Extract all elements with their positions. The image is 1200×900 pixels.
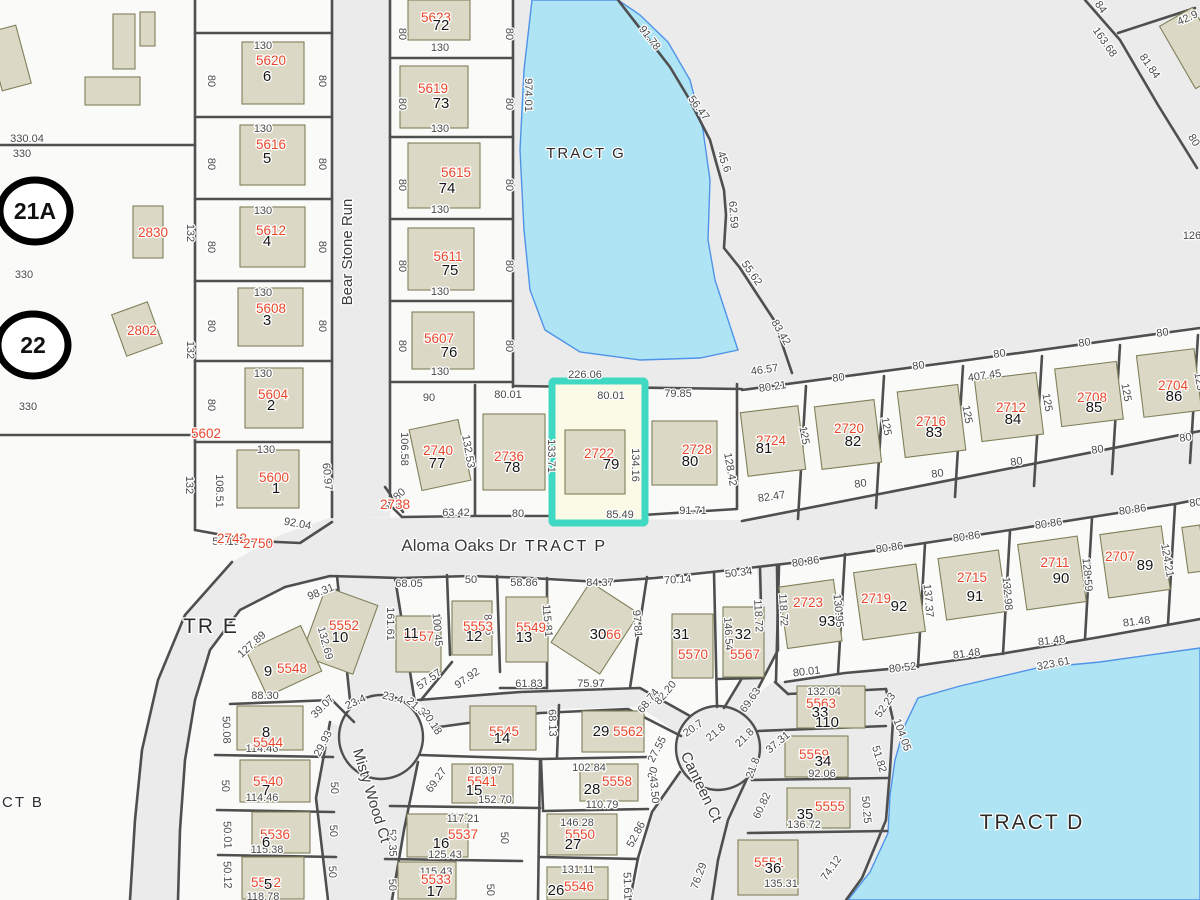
- lot-number: 15: [466, 782, 483, 799]
- parcel-number: 5555: [815, 799, 845, 814]
- lot-number: 92: [891, 598, 908, 615]
- lot-number: 28: [584, 781, 601, 798]
- lot-number: 90: [1053, 570, 1070, 587]
- dimension-label: 133.71: [545, 439, 557, 473]
- dimension-label: 80: [1091, 443, 1105, 457]
- tract-label: CT B: [2, 794, 44, 811]
- parcel-number: 5562: [613, 724, 643, 739]
- parcel-number: 5615: [441, 165, 471, 180]
- lot-number: 3: [263, 312, 271, 329]
- dimension-label: 80: [396, 340, 408, 352]
- lot-number: 73: [433, 95, 450, 112]
- dimension-label: 80: [316, 241, 328, 253]
- lot-number: 5: [264, 876, 272, 893]
- section-ring-label: 21A: [14, 198, 56, 224]
- parcel-number: 5558: [602, 774, 632, 789]
- lot-number: 82: [845, 433, 862, 450]
- dimension-label: 330: [19, 401, 37, 413]
- building-footprint: [140, 12, 155, 46]
- dimension-label: 131.11: [562, 864, 595, 876]
- parcel-number: 2715: [957, 570, 987, 585]
- dimension-label: 80: [503, 28, 515, 40]
- dimension-label: 130: [431, 123, 449, 135]
- lot-number: 78: [504, 459, 521, 476]
- dimension-label: 132: [183, 476, 195, 494]
- dimension-label: 130: [254, 123, 272, 135]
- lot-number: 16: [433, 835, 450, 852]
- parcel-map-viewport[interactable]: 21A22330.04330330330132132132108.5160.97…: [0, 0, 1200, 900]
- parcel-number: 5537: [448, 827, 478, 842]
- dimension-label: 50: [465, 574, 477, 586]
- dimension-label: 50: [484, 884, 496, 897]
- street-name-label: Aloma Oaks Dr: [401, 536, 517, 555]
- dimension-label: 132: [184, 341, 196, 359]
- dimension-label: 135.31: [764, 878, 798, 890]
- lot-number: 6: [263, 68, 271, 85]
- parcel-number: 2719: [861, 591, 891, 606]
- lot-number: 1: [272, 480, 280, 497]
- dimension-label: 50: [327, 825, 339, 838]
- dimension-label: 130: [254, 368, 272, 380]
- dimension-label: 80: [993, 347, 1007, 361]
- dimension-label: 130: [254, 40, 272, 52]
- dimension-label: 80: [205, 320, 217, 332]
- dimension-label: 130: [431, 366, 449, 378]
- dimension-label: 80: [1179, 431, 1193, 445]
- building-footprint: [938, 550, 1007, 620]
- dimension-label: 80: [1078, 336, 1092, 350]
- dimension-label: 50: [219, 780, 231, 793]
- dimension-label: 79.85: [664, 388, 692, 400]
- dimension-label: 330: [15, 269, 33, 281]
- dimension-label: 90: [423, 392, 435, 404]
- dimension-label: 117.21: [447, 813, 480, 825]
- dimension-label: 91.71: [679, 505, 707, 517]
- dimension-label: 50: [386, 879, 398, 892]
- dimension-label: 126: [1183, 230, 1200, 242]
- lot-number: 17: [427, 883, 444, 900]
- dimension-label: 68.13: [546, 709, 559, 737]
- lot-number: 34: [815, 753, 832, 770]
- dimension-label: 80: [503, 98, 515, 110]
- lot-number: 93: [819, 613, 836, 630]
- dimension-label: 50.01: [221, 821, 234, 849]
- dimension-label: 75.97: [577, 678, 605, 690]
- lot-number: 4: [263, 233, 271, 250]
- dimension-label: 80: [205, 158, 217, 170]
- lot-number: 85: [1086, 399, 1103, 416]
- lot-number: 11: [403, 625, 419, 642]
- parcel-number: 2723: [793, 595, 823, 610]
- tract-label: TRACT G: [546, 145, 626, 162]
- dimension-label: 130: [431, 204, 449, 216]
- dimension-label: 80: [396, 98, 408, 110]
- dimension-label: 106.58: [398, 432, 410, 466]
- dimension-label: 108.51: [213, 474, 225, 508]
- lot-number: 31: [673, 626, 690, 643]
- tract-label: TRACT D: [980, 811, 1085, 834]
- tract-label: TRACT P: [525, 538, 607, 555]
- dimension-label: 50.25: [859, 796, 873, 824]
- dimension-label: 80.01: [597, 390, 625, 402]
- dimension-label: 80: [396, 28, 408, 40]
- dimension-label: 50: [326, 866, 338, 879]
- lot-number: 9: [264, 663, 272, 680]
- lot-number: 12: [466, 628, 483, 645]
- parcel-number: 2750: [243, 536, 273, 551]
- lot-number: 76: [441, 344, 458, 361]
- parcel-number: 5567: [730, 647, 760, 662]
- dimension-label: 226.06: [568, 369, 602, 381]
- lot-number: 2: [267, 397, 275, 414]
- dimension-label: 80: [912, 359, 926, 373]
- dimension-label: 80: [854, 477, 868, 491]
- dimension-label: 58.86: [510, 577, 538, 589]
- dimension-label: 134.16: [629, 448, 641, 482]
- dimension-label: 330: [13, 148, 31, 160]
- dimension-label: 80: [205, 75, 217, 87]
- lot-number: 79: [603, 456, 620, 473]
- lot-number: 7: [262, 782, 270, 799]
- building-footprint: [240, 125, 305, 185]
- dimension-label: 102.84: [572, 762, 606, 774]
- dimension-label: 80: [396, 179, 408, 191]
- dimension-label: 50.08: [220, 716, 233, 744]
- lot-number: 14: [494, 730, 511, 747]
- lot-number: 36: [765, 860, 782, 877]
- lot-number: 75: [442, 262, 459, 279]
- parcel-number: 5546: [564, 879, 594, 894]
- dimension-label: 88.30: [251, 690, 279, 702]
- lot-number: 29: [593, 723, 610, 740]
- lot-number: 8: [262, 724, 270, 741]
- parcel-number: 5548: [277, 661, 307, 676]
- lot-number: 35: [797, 806, 814, 823]
- lot-number: 27: [565, 836, 582, 853]
- dimension-label: 80: [931, 467, 945, 481]
- lot-number: 110: [815, 714, 839, 731]
- parcel-number: 5602: [191, 426, 221, 441]
- dimension-label: 80: [503, 260, 515, 272]
- dimension-label: 118.72: [776, 593, 790, 626]
- dimension-label: 51.61: [621, 872, 634, 900]
- lot-number: 91: [967, 588, 984, 605]
- dimension-label: 130: [254, 287, 272, 299]
- dimension-label: 80: [832, 371, 846, 385]
- parcel-number: 2707: [1105, 549, 1135, 564]
- lot-number: 32: [735, 626, 752, 643]
- lot-number: 80: [682, 453, 699, 470]
- dimension-label: 50: [328, 782, 340, 795]
- dimension-label: 80: [396, 260, 408, 272]
- dimension-label: 84.37: [586, 577, 614, 589]
- dimension-label: 161.61: [384, 607, 396, 641]
- building-footprint: [85, 77, 140, 105]
- lot-number: 77: [429, 455, 446, 472]
- dimension-label: 130: [257, 444, 275, 456]
- lot-number: 13: [516, 629, 533, 646]
- dimension-label: 130: [254, 205, 272, 217]
- lot-number: 74: [439, 180, 456, 197]
- dimension-label: 80: [503, 340, 515, 352]
- lot-number: 83: [926, 424, 943, 441]
- dimension-label: 61.83: [515, 678, 543, 690]
- dimension-label: 80: [1189, 496, 1200, 510]
- parcel-number: 5619: [418, 81, 448, 96]
- parcel-number: 2802: [127, 323, 157, 338]
- lot-number: 30: [590, 626, 607, 643]
- parcel-number: 2711: [1040, 555, 1069, 570]
- dimension-label: 50.12: [221, 861, 234, 889]
- section-ring-label: 22: [20, 332, 46, 358]
- lot-number: 86: [1166, 388, 1183, 405]
- dimension-label: 80: [512, 508, 524, 520]
- street-name-label: Bear Stone Run: [339, 199, 356, 306]
- parcel-number: 2738: [380, 497, 410, 512]
- dimension-label: 80: [205, 399, 217, 411]
- dimension-label: 68.05: [395, 578, 423, 590]
- dimension-label: 118.72: [751, 599, 765, 632]
- dimension-label: 97.81: [630, 610, 644, 638]
- tract-label: TR E: [183, 615, 239, 638]
- dimension-label: 80: [316, 75, 328, 87]
- dimension-label: 974.01: [522, 78, 534, 112]
- lot-number: 6: [262, 834, 270, 851]
- lot-number: 72: [433, 17, 450, 34]
- dimension-label: 50: [498, 832, 510, 845]
- parcel-map[interactable]: 21A22330.04330330330132132132108.5160.97…: [0, 0, 1200, 900]
- parcel-number: 5570: [678, 647, 708, 662]
- dimension-label: 130: [431, 286, 449, 298]
- dimension-label: 152.70: [478, 794, 512, 806]
- dimension-label: 85.49: [606, 509, 634, 521]
- lot-number: 89: [1137, 557, 1154, 574]
- dimension-label: 80: [316, 320, 328, 332]
- dimension-label: 146.54: [721, 617, 735, 651]
- lot-number: 5: [263, 150, 271, 167]
- building-footprint: [242, 42, 304, 104]
- dimension-label: 43.50: [647, 776, 661, 804]
- dimension-label: 63.42: [442, 507, 470, 519]
- dimension-label: 110.79: [586, 799, 619, 811]
- lot-number: 81: [756, 440, 773, 457]
- dimension-label: 80: [316, 158, 328, 170]
- building-footprint: [672, 614, 713, 678]
- dimension-label: 62.59: [726, 201, 740, 229]
- dimension-label: 80: [205, 241, 217, 253]
- dimension-label: 80: [1010, 455, 1024, 469]
- building-footprint: [113, 14, 135, 69]
- dimension-label: 330.04: [10, 133, 44, 145]
- lot-number: 26: [548, 882, 565, 899]
- dimension-label: 80.01: [494, 389, 522, 401]
- dimension-label: 70.14: [664, 573, 692, 587]
- lot-number: 84: [1005, 411, 1022, 428]
- dimension-label: 80: [503, 179, 515, 191]
- dimension-label: 130: [431, 42, 449, 54]
- dimension-label: 80: [1156, 326, 1170, 340]
- dimension-label: 132: [184, 224, 196, 242]
- parcel-number: 2830: [138, 225, 168, 240]
- parcel-number: 5620: [256, 53, 286, 68]
- lot-number: 10: [332, 629, 349, 646]
- parcel-boundary-line: [718, 678, 762, 679]
